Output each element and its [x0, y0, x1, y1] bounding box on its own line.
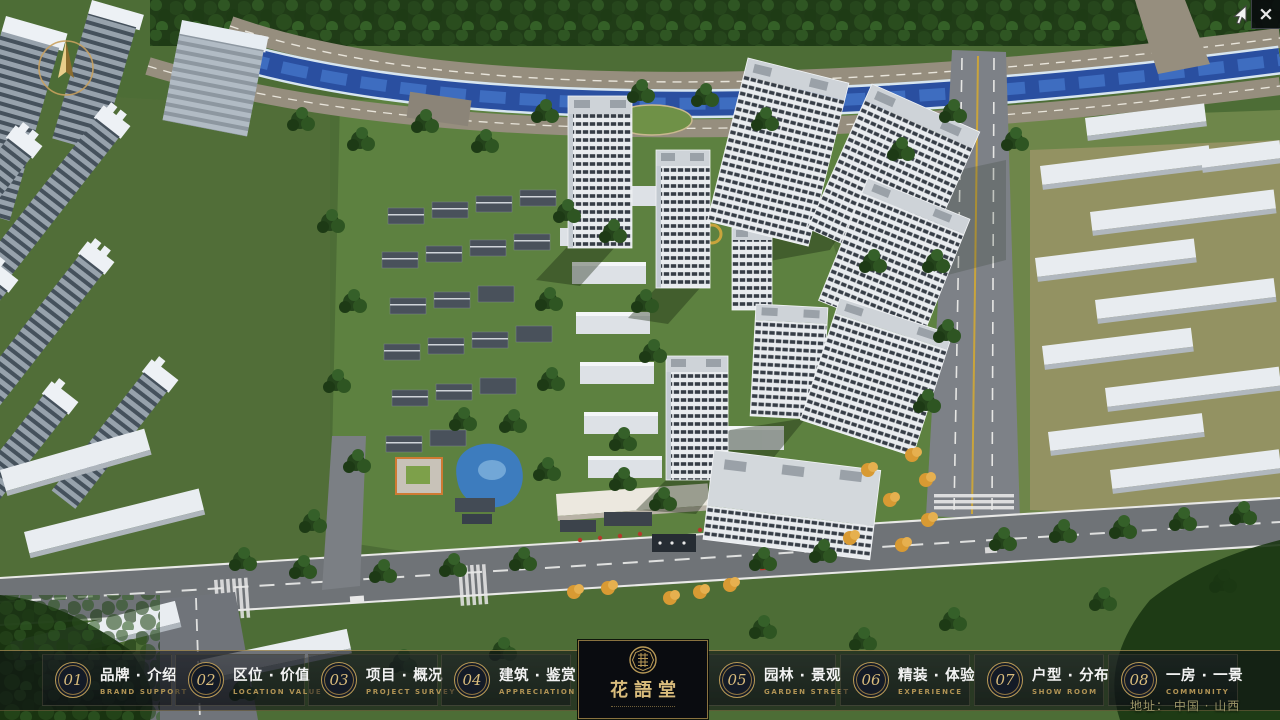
brand-subtitle-rule	[611, 706, 675, 707]
brand-logo-panel[interactable]: 花語堂	[578, 640, 708, 719]
nav-item-floorplan-distribution[interactable]: 07 户型 · 分布 SHOW ROOM	[974, 654, 1104, 706]
project-address: 地址： 中国 · 山西	[1130, 697, 1240, 714]
nav-item-number-badge: 02	[188, 662, 224, 698]
nav-item-number-badge: 01	[55, 662, 91, 698]
app-window: × 01 品牌 · 介绍 BRAND SUPPORT 02 区位 · 价值 LO…	[0, 0, 1280, 720]
nav-item-architecture[interactable]: 04 建筑 · 鉴赏 APPRECIATION	[441, 654, 571, 706]
nav-item-location-value[interactable]: 02 区位 · 价值 LOCATION VALUE	[175, 654, 305, 706]
nav-item-label-zh: 户型 · 分布	[1032, 664, 1109, 685]
nav-item-label-en: SHOW ROOM	[1032, 688, 1109, 696]
nav-item-label-zh: 园林 · 景观	[764, 664, 850, 685]
nav-item-interior-experience[interactable]: 06 精装 · 体验 EXPERIENCE	[840, 654, 970, 706]
brand-seal-icon	[628, 645, 658, 675]
nav-item-number-badge: 03	[321, 662, 357, 698]
nav-item-label-zh: 建筑 · 鉴赏	[499, 664, 576, 685]
nav-item-number-badge: 06	[853, 662, 889, 698]
nav-item-label-en: GARDEN STREET	[764, 688, 850, 696]
nav-item-label-zh: 一房 · 一景	[1166, 664, 1243, 685]
close-icon: ×	[1258, 5, 1274, 24]
nav-item-number-badge: 05	[719, 662, 755, 698]
nav-item-label-en: APPRECIATION	[499, 688, 576, 696]
nav-item-label-zh: 精装 · 体验	[898, 664, 975, 685]
nav-item-brand-intro[interactable]: 01 品牌 · 介绍 BRAND SUPPORT	[42, 654, 172, 706]
nav-item-number-badge: 08	[1121, 662, 1157, 698]
brand-title: 花語堂	[604, 676, 682, 702]
nav-item-number-badge: 04	[454, 662, 490, 698]
close-button[interactable]: ×	[1251, 0, 1280, 29]
nav-item-number-badge: 07	[987, 662, 1023, 698]
nav-item-garden-landscape[interactable]: 05 园林 · 景观 GARDEN STREET	[706, 654, 836, 706]
scene-render	[0, 0, 1280, 720]
nav-item-project-overview[interactable]: 03 项目 · 概况 PROJECT SURVEY	[308, 654, 438, 706]
nav-item-label-en: EXPERIENCE	[898, 688, 975, 696]
nav-item-label-en: COMMUNITY	[1166, 688, 1243, 696]
mouse-cursor	[1230, 4, 1250, 28]
